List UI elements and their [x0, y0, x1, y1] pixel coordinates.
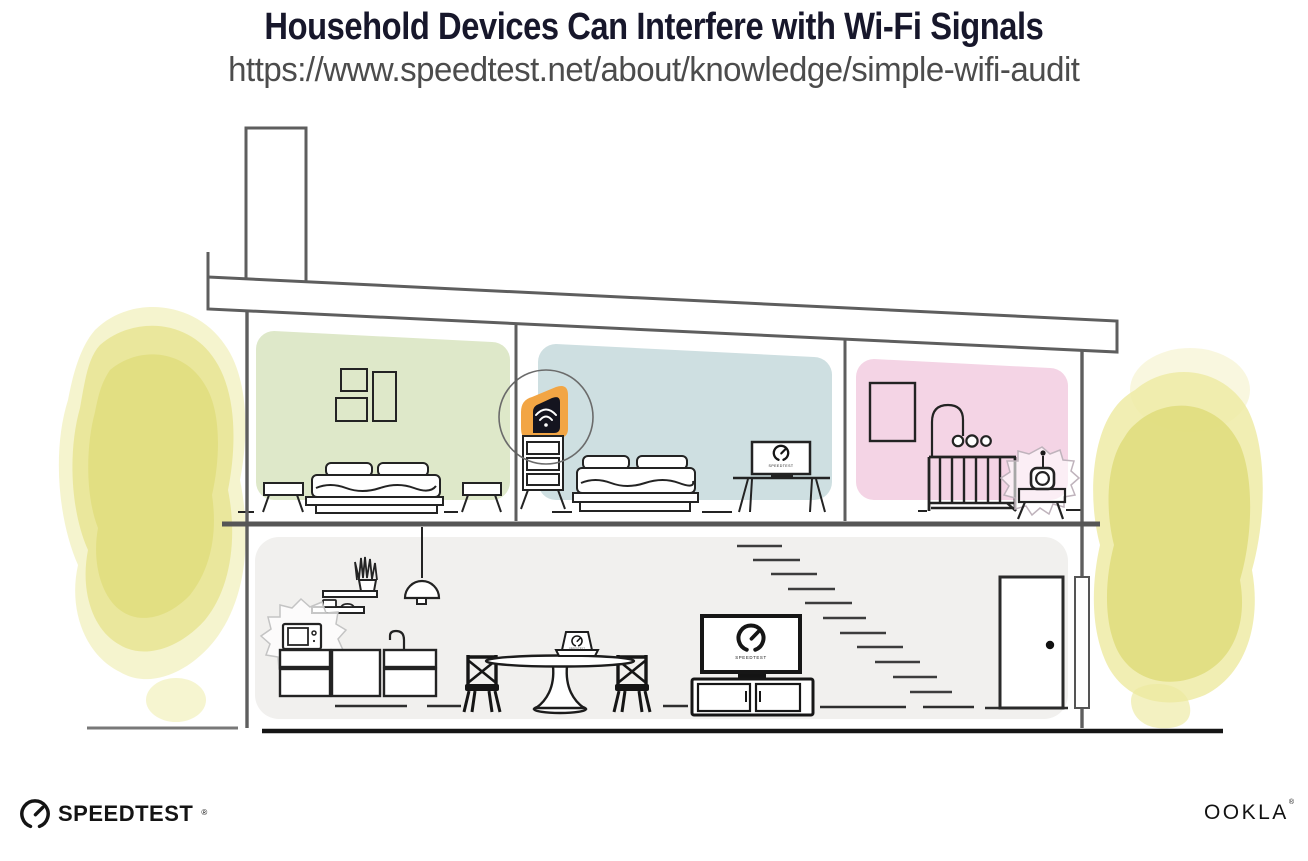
floor-dashes	[918, 510, 1081, 511]
ookla-wordmark: OOKLA	[1204, 801, 1289, 824]
speedtest-logo: SPEEDTEST®	[20, 799, 207, 829]
tv-console	[692, 679, 813, 715]
laptop-screen-label: SPEEDTEST	[769, 464, 794, 468]
cup	[323, 600, 336, 607]
speedtest-wordmark: SPEEDTEST	[58, 801, 193, 827]
kitchen-counter	[280, 650, 436, 696]
microwave	[283, 624, 321, 649]
page-title: Household Devices Can Interfere with Wi-…	[264, 6, 1043, 49]
house-illustration: SPEEDTEST	[0, 0, 1308, 861]
dining-laptop-label: SPEEDTEST	[569, 648, 585, 651]
speedtest-gauge-icon	[20, 799, 50, 829]
source-url: https://www.speedtest.net/about/knowledg…	[228, 51, 1079, 90]
door-knob	[1046, 641, 1054, 649]
left-tree	[59, 307, 246, 722]
registered-mark: ®	[1289, 799, 1294, 806]
registered-mark: ®	[201, 808, 207, 817]
tv-stand	[738, 674, 766, 678]
header: Household Devices Can Interfere with Wi-…	[0, 0, 1308, 90]
tv-screen-label: SPEEDTEST	[735, 655, 767, 660]
bowl	[341, 604, 354, 607]
chimney	[246, 128, 306, 282]
downspout	[1075, 577, 1089, 708]
front-door	[1000, 577, 1063, 708]
right-tree	[1093, 348, 1263, 728]
tv-area: SPEEDTEST	[692, 616, 813, 715]
ookla-logo: OOKLA®	[1204, 801, 1294, 825]
